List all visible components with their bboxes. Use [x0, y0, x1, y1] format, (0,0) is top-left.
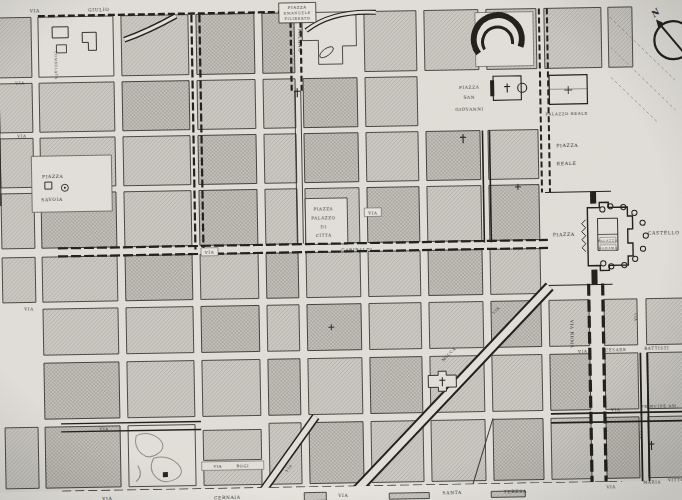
- historic-city-plan-photo: VIA GIULIO PIAZZA EMANUELE FILIBERTO MIL…: [0, 0, 682, 500]
- photo-vignette: [0, 0, 682, 500]
- turin-city-map: VIA GIULIO PIAZZA EMANUELE FILIBERTO MIL…: [0, 0, 682, 500]
